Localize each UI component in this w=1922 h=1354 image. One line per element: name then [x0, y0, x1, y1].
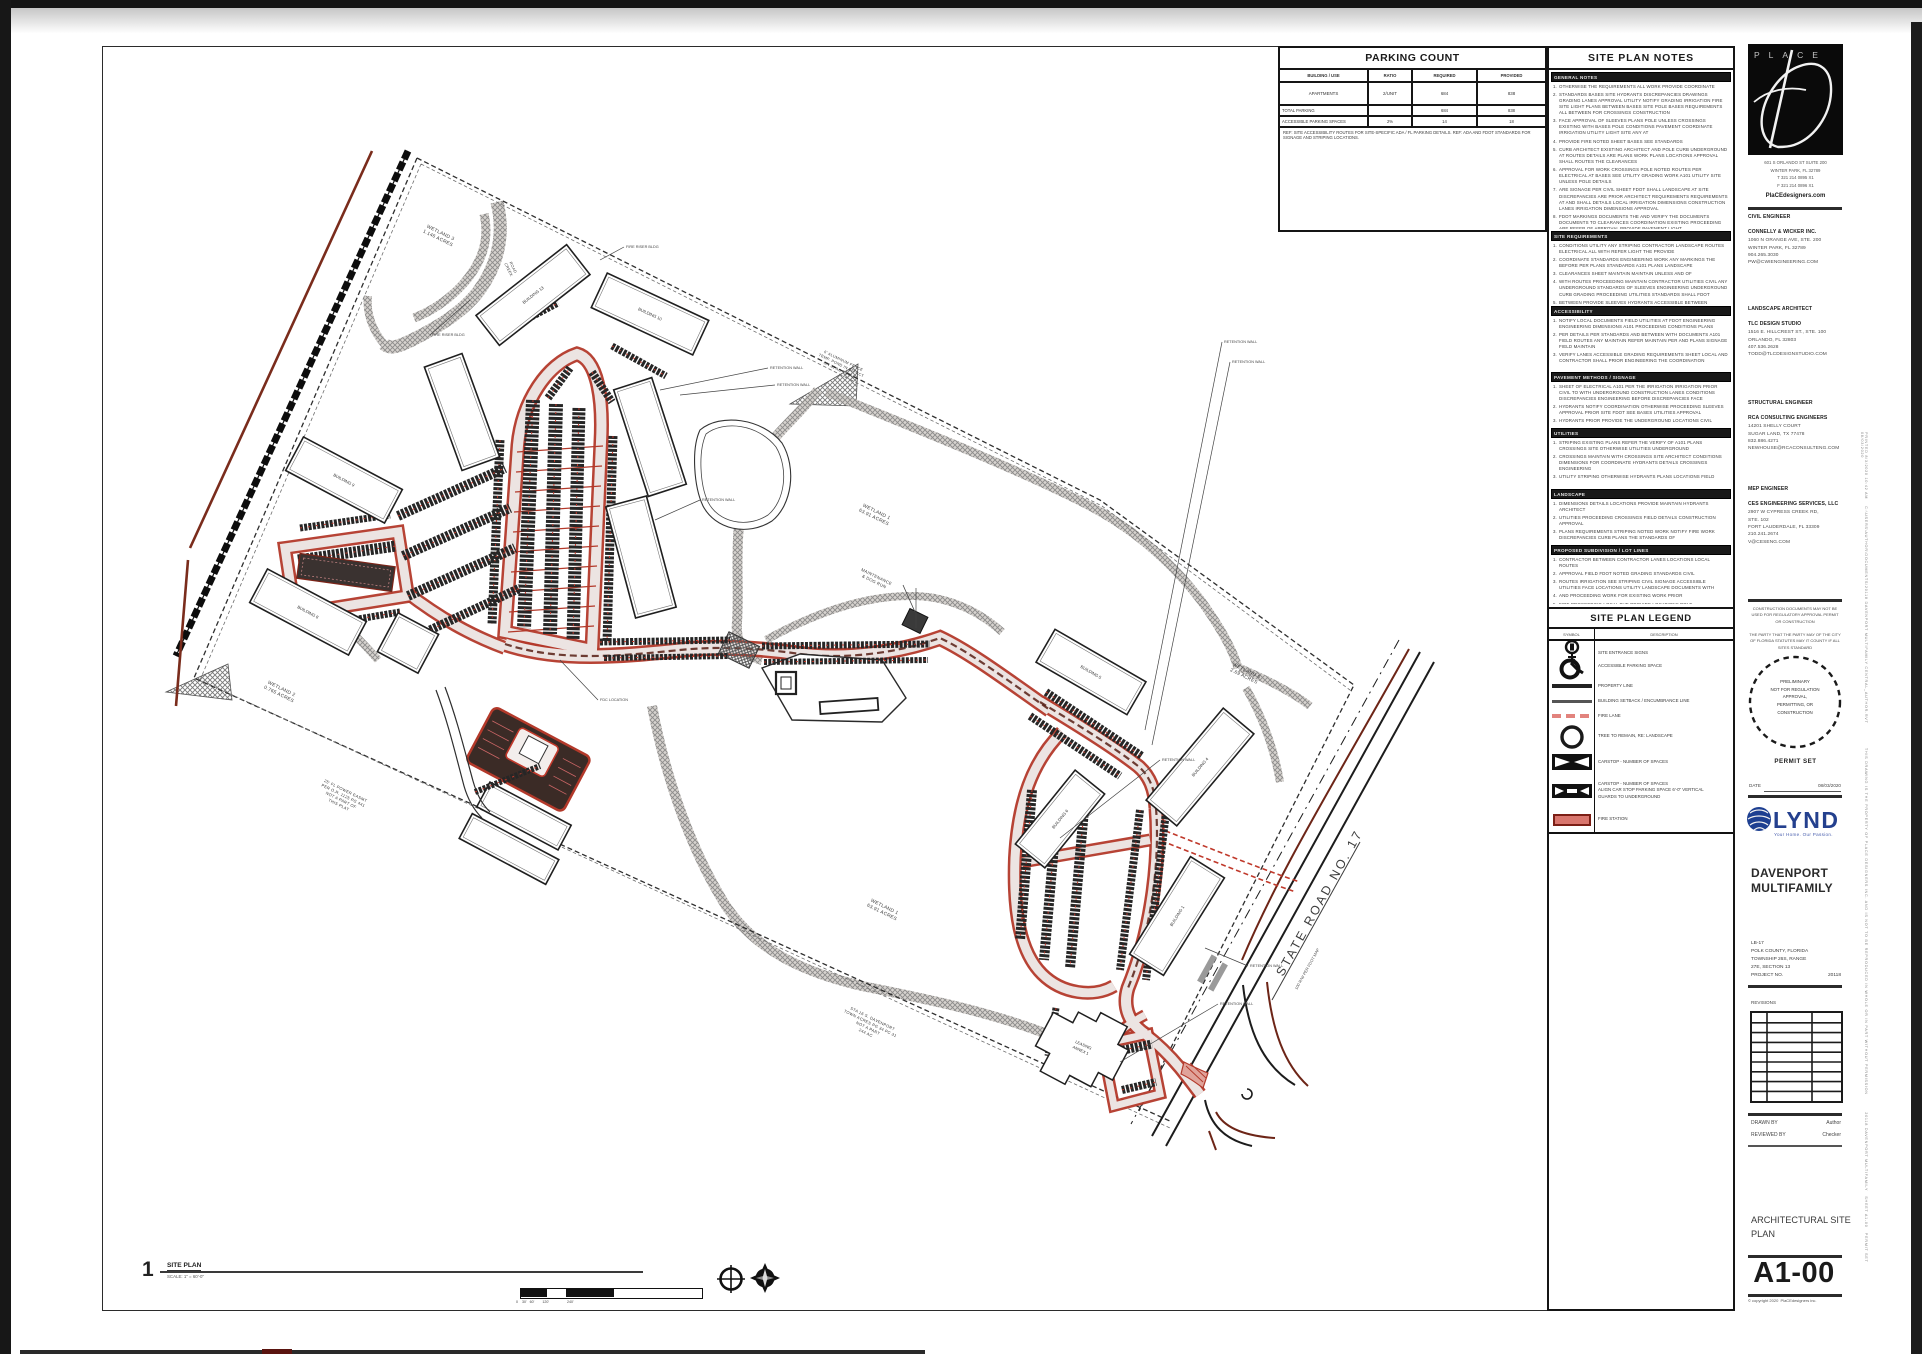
svg-text:Your Home. Our Passion.: Your Home. Our Passion.	[1774, 832, 1833, 837]
svg-text:LYND: LYND	[1773, 807, 1840, 833]
